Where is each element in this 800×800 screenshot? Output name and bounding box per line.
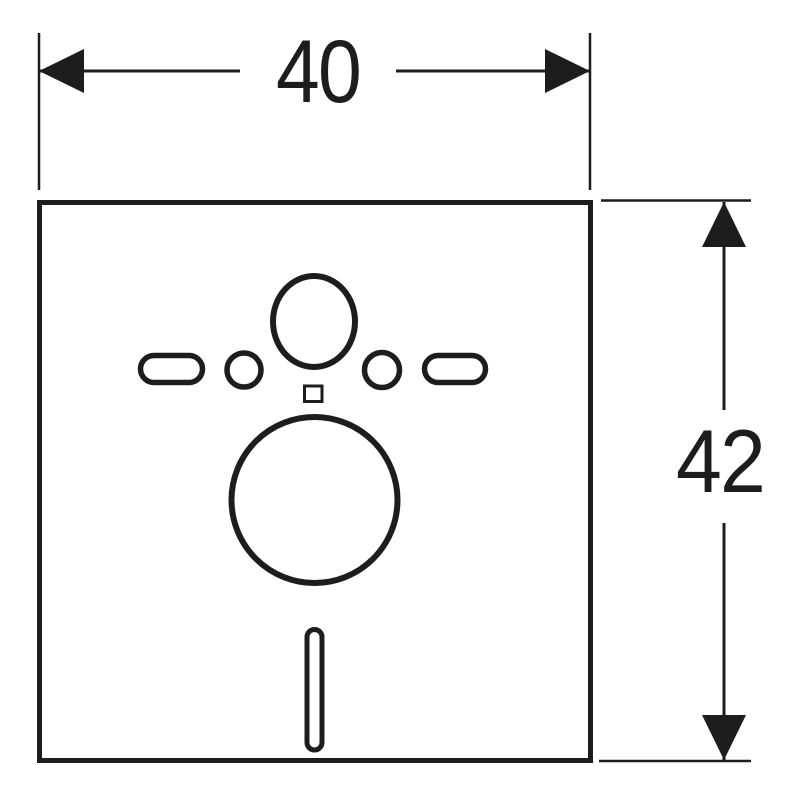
height-dimension: 42 xyxy=(599,201,764,762)
height-arrow-bottom xyxy=(702,715,746,760)
height-arrow-top xyxy=(702,202,746,247)
technical-drawing: 40 42 xyxy=(0,0,800,800)
width-dim-label: 40 xyxy=(276,21,360,121)
width-dimension: 40 xyxy=(39,21,590,190)
width-arrow-right xyxy=(545,49,590,93)
mat-outline xyxy=(40,203,591,761)
width-arrow-left xyxy=(39,49,84,93)
height-dim-label: 42 xyxy=(676,411,764,511)
drawing-canvas: 40 42 xyxy=(0,0,800,800)
